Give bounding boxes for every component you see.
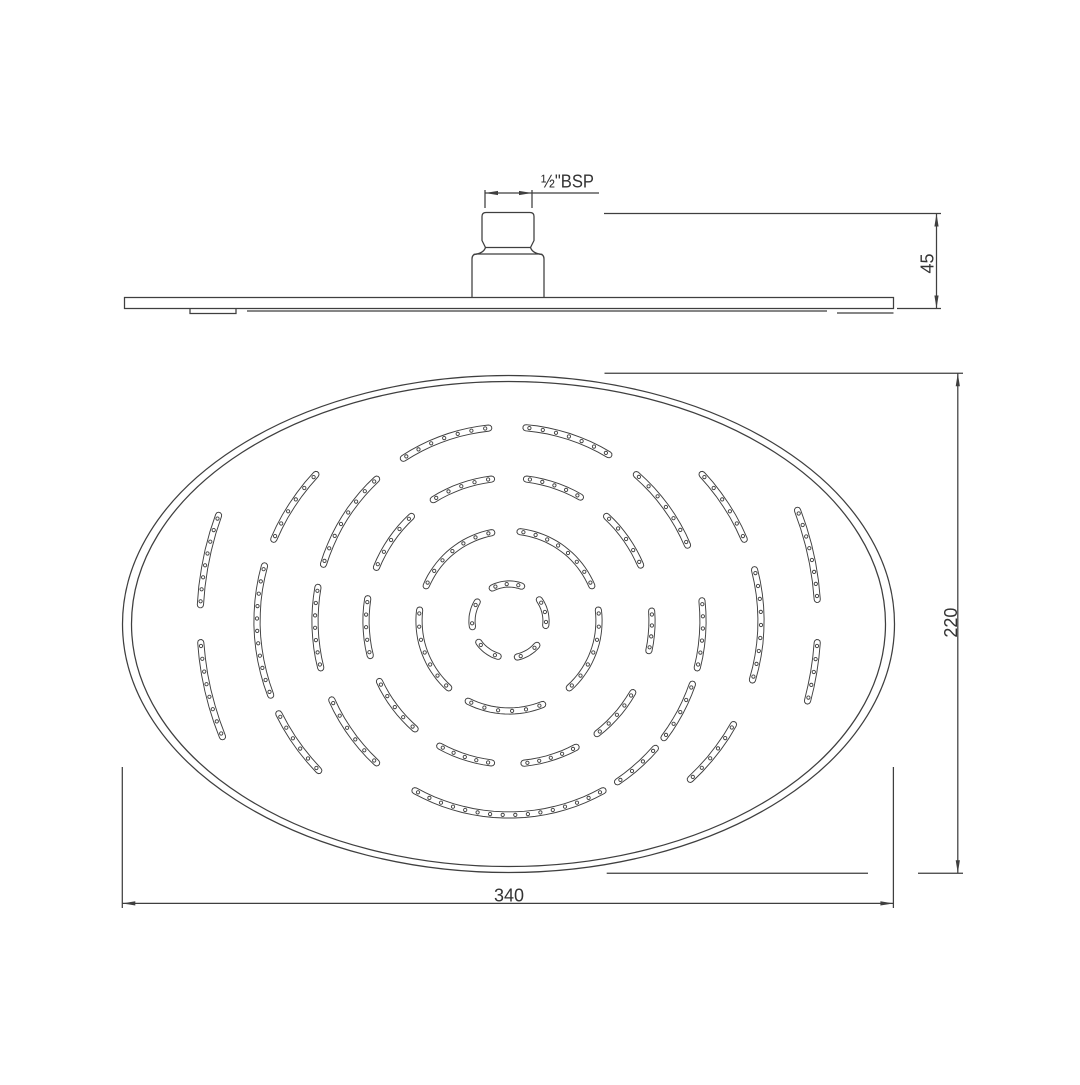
svg-text:220: 220 (941, 608, 961, 638)
svg-text:340: 340 (494, 886, 524, 906)
svg-text:45: 45 (918, 253, 938, 273)
svg-text:½"BSP: ½"BSP (541, 172, 594, 192)
